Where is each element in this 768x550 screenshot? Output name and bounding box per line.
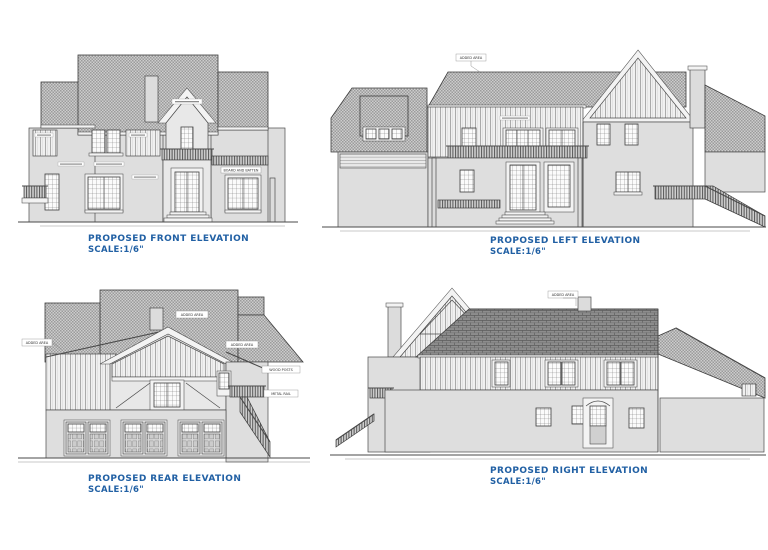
left-attic-window [392, 129, 402, 139]
front-upper-window [92, 130, 105, 153]
right-wing-wall [660, 398, 764, 452]
left-lower-window [460, 170, 474, 192]
front-upper-window [107, 130, 120, 153]
left-balcony-railing [448, 146, 587, 158]
right-lower-window [536, 408, 551, 426]
front-balcony-railing [162, 149, 212, 160]
left-attic-window [366, 129, 376, 139]
right-elevation-scale: SCALE:1/6" [490, 477, 546, 487]
left-far-right-wall [705, 152, 765, 192]
rear-elevation-title: PROPOSED REAR ELEVATION [88, 474, 241, 484]
right-lower-wall [385, 390, 658, 452]
right-left-chimney [388, 305, 401, 357]
right-lower-window [629, 408, 644, 428]
left-porch-skirt [438, 200, 500, 208]
left-gable-window [625, 124, 638, 145]
annotation-added-area: ADDED AREA [460, 56, 483, 60]
right-upper-window [562, 362, 575, 385]
elevations-drawing-canvas: BOARD AND BATTEN PROPOSED FRONT ELEVATIO… [0, 0, 768, 550]
rear-elevation-scale: SCALE:1/6" [88, 485, 144, 495]
left-wing-siding [340, 154, 426, 168]
right-upper-window [607, 362, 620, 385]
left-gable-window [597, 124, 610, 145]
annotation-added-area: ADDED AREA [231, 343, 254, 347]
right-upper-window [548, 362, 561, 385]
right-upper-window [621, 362, 634, 385]
front-left-deck-railing [24, 186, 46, 198]
rear-right-roof [238, 297, 264, 315]
elevation-sheet: BOARD AND BATTEN PROPOSED FRONT ELEVATIO… [0, 0, 768, 550]
left-tall-window [548, 165, 570, 207]
front-porch-post [270, 178, 275, 222]
front-elevation-title: PROPOSED FRONT ELEVATION [88, 234, 249, 244]
left-deck-railing [655, 186, 705, 199]
rear-elevation-drawing: ADDED AREA ADDED AREA ADDED AREA WOOD PO… [18, 290, 310, 495]
left-steps [505, 212, 545, 215]
front-right-roof [218, 72, 268, 130]
front-chimney [145, 76, 158, 122]
left-elevation-scale: SCALE:1/6" [490, 247, 546, 257]
right-upper-window [495, 362, 508, 385]
rear-garage-door [178, 420, 224, 456]
front-left-door [45, 174, 59, 210]
rear-right-roof-slope [238, 315, 303, 362]
front-elevation-scale: SCALE:1/6" [88, 245, 144, 255]
front-right-trellis [212, 156, 268, 165]
annotation-added-area: ADDED AREA [181, 313, 204, 317]
right-ridge-chimney [578, 297, 591, 311]
annotation-board-and-batten: BOARD AND BATTEN [224, 169, 259, 173]
front-steps [170, 212, 206, 215]
annotation-wood-posts: WOOD POSTS [269, 368, 292, 372]
front-gable-window [181, 127, 193, 149]
front-elevation-drawing: BOARD AND BATTEN PROPOSED FRONT ELEVATIO… [18, 55, 298, 255]
rear-garage-door [64, 420, 110, 456]
left-elevation-drawing: ADDED AREA [322, 50, 766, 257]
right-elevation-title: PROPOSED RIGHT ELEVATION [490, 466, 648, 476]
left-elevation-title: PROPOSED LEFT ELEVATION [490, 236, 640, 246]
annotation-added-area: ADDED AREA [26, 341, 49, 345]
left-far-right-roof [705, 85, 765, 152]
right-entry-door [590, 406, 606, 426]
left-attic-window [379, 129, 389, 139]
annotation-metal-rail: METAL RAIL [271, 392, 291, 396]
rear-deck-railing [230, 386, 264, 397]
rear-left-roof [45, 303, 100, 362]
rear-garage-door [121, 420, 167, 456]
rear-chimney [150, 308, 163, 330]
rear-side-door [219, 373, 229, 389]
left-chimney [690, 68, 705, 128]
front-left-deck [22, 198, 48, 203]
annotation-added-area: ADDED AREA [552, 293, 575, 297]
right-elevation-drawing: ADDED AREA PROPOSED RIGHT ELEVATION SCAL… [330, 288, 766, 487]
